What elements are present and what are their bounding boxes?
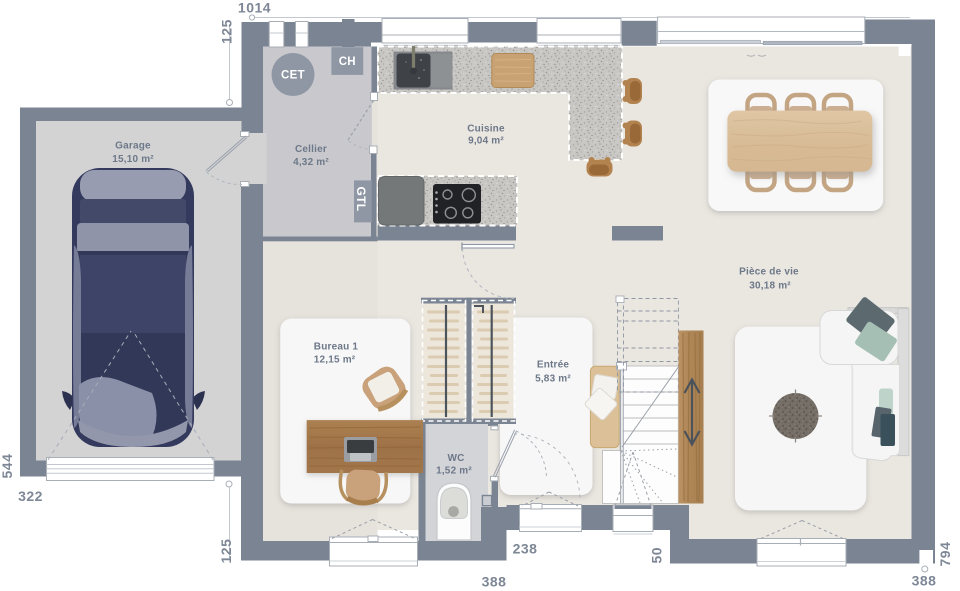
svg-text:9,04 m²: 9,04 m² [468,136,504,147]
svg-text:794: 794 [937,542,953,567]
svg-text:15,10 m²: 15,10 m² [112,154,154,165]
svg-text:Garage: Garage [115,141,151,152]
svg-text:GTL: GTL [354,187,368,212]
svg-text:238: 238 [513,541,538,557]
svg-text:125: 125 [219,19,235,44]
svg-text:388: 388 [912,573,937,589]
svg-text:30,18 m²: 30,18 m² [749,281,791,292]
svg-text:Pièce de vie: Pièce de vie [739,267,799,278]
svg-text:Entrée: Entrée [537,360,570,371]
svg-text:5,83 m²: 5,83 m² [535,374,571,385]
svg-text:CH: CH [339,56,356,68]
svg-text:50: 50 [649,547,665,564]
svg-text:544: 544 [0,454,15,479]
svg-text:4,32 m²: 4,32 m² [293,157,329,168]
svg-text:12,15 m²: 12,15 m² [314,355,356,366]
svg-text:Bureau 1: Bureau 1 [314,342,359,353]
svg-text:Cuisine: Cuisine [467,124,505,135]
svg-text:WC: WC [447,453,464,464]
svg-text:Cellier: Cellier [295,144,327,155]
svg-text:388: 388 [482,574,507,590]
svg-text:1,52 m²: 1,52 m² [436,466,472,477]
svg-text:322: 322 [18,488,43,504]
svg-text:125: 125 [218,539,234,564]
svg-text:CET: CET [281,70,305,82]
svg-text:1014: 1014 [238,0,271,16]
